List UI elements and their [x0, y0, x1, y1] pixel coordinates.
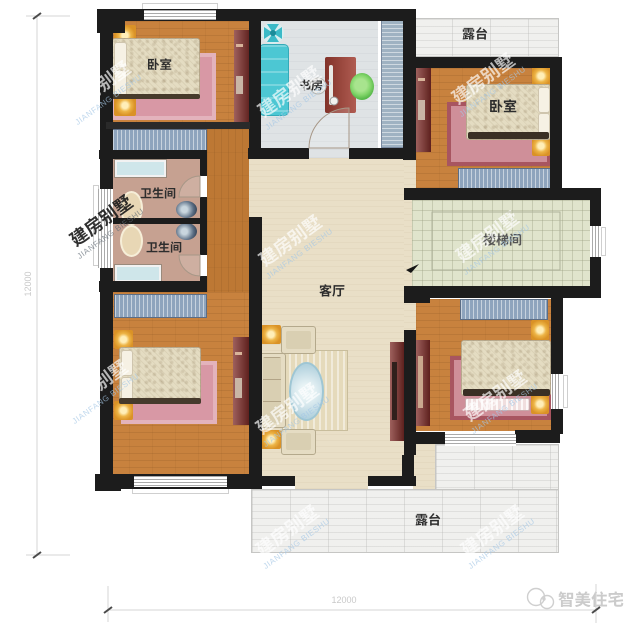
- svg-text:12000: 12000: [23, 271, 33, 296]
- svg-text:12000: 12000: [331, 595, 356, 605]
